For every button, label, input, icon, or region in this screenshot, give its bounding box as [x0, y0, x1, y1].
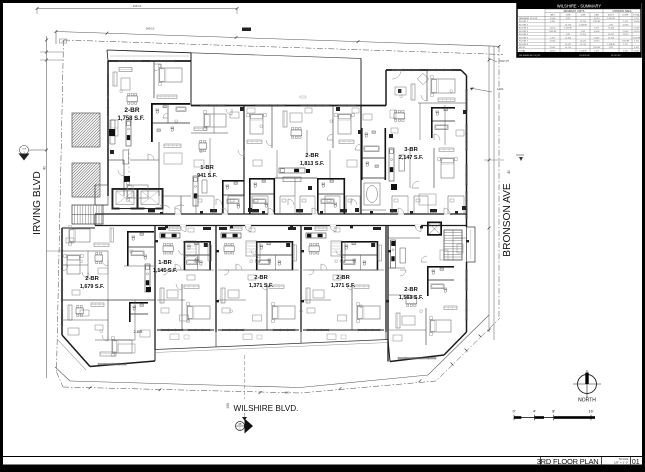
- svg-text:8': 8': [552, 410, 555, 414]
- svg-text:2-BR: 2-BR: [254, 275, 268, 281]
- svg-text:RESIDENT UNITS: RESIDENT UNITS: [564, 10, 585, 13]
- svg-text:2-BR: 2-BR: [566, 15, 571, 17]
- svg-text:1,371: 1,371: [581, 31, 586, 33]
- svg-text:4,325: 4,325: [550, 21, 555, 23]
- svg-text:CORR.: CORR.: [622, 15, 629, 17]
- svg-text:1,585 SF: 1,585 SF: [607, 18, 616, 20]
- svg-text:1,371: 1,371: [634, 18, 639, 20]
- svg-text:FLOOR 5: FLOOR 5: [519, 34, 529, 36]
- svg-text:941 S.F.: 941 S.F.: [197, 173, 217, 179]
- svg-text:3-BR: 3-BR: [404, 147, 418, 153]
- svg-text:1,585 SF: 1,585 SF: [593, 21, 602, 23]
- svg-text:1,371 S.F.: 1,371 S.F.: [331, 283, 356, 289]
- svg-text:1,371: 1,371: [594, 28, 599, 30]
- svg-text:123,456 SF: 123,456 SF: [579, 55, 590, 57]
- svg-text:12,456: 12,456: [550, 18, 556, 20]
- svg-text:1-BR: 1-BR: [200, 165, 214, 171]
- svg-text:12,456: 12,456: [634, 21, 640, 23]
- svg-text:13,716: 13,716: [594, 41, 600, 43]
- svg-text:21,047: 21,047: [565, 44, 571, 46]
- svg-text:1,371: 1,371: [623, 44, 628, 46]
- svg-text:NORTH: NORTH: [578, 398, 596, 404]
- svg-text:1,145 S.F.: 1,145 S.F.: [153, 268, 178, 274]
- svg-text:16': 16': [589, 410, 594, 414]
- svg-text:WILSHIRE - SUMMARY: WILSHIRE - SUMMARY: [557, 3, 602, 8]
- svg-text:1,371 S.F.: 1,371 S.F.: [249, 283, 274, 289]
- svg-text:12,456: 12,456: [565, 37, 571, 39]
- svg-text:21,047: 21,047: [634, 28, 640, 30]
- svg-text:HIGH PT: HIGH PT: [499, 60, 510, 63]
- svg-text:12,456: 12,456: [594, 31, 600, 33]
- svg-text:FLOOR 1: FLOOR 1: [519, 21, 529, 23]
- svg-text:4,325: 4,325: [566, 18, 571, 20]
- svg-text:4,325: 4,325: [634, 47, 639, 49]
- svg-text:1,371: 1,371: [609, 24, 614, 26]
- svg-text:1,371: 1,371: [594, 50, 599, 52]
- svg-text:7,148 SF: 7,148 SF: [579, 50, 588, 52]
- svg-text:40: 40: [43, 166, 47, 170]
- svg-text:1,585 SF: 1,585 SF: [564, 28, 573, 30]
- svg-text:FLOOR 6: FLOOR 6: [519, 37, 529, 39]
- svg-text:1,371: 1,371: [634, 41, 639, 43]
- svg-text:7,148 SF: 7,148 SF: [633, 37, 642, 39]
- svg-text:3RD FLOOR PLAN: 3RD FLOOR PLAN: [537, 457, 599, 466]
- svg-text:FLOOR 8: FLOOR 8: [519, 44, 529, 46]
- svg-text:12,456: 12,456: [608, 28, 614, 30]
- svg-text:SQ.FT.: SQ.FT.: [608, 15, 615, 17]
- svg-text:13,716: 13,716: [594, 18, 600, 20]
- svg-text:100: 100: [226, 403, 230, 409]
- svg-text:1,371: 1,371: [623, 21, 628, 23]
- svg-text:21,047: 21,047: [623, 31, 629, 33]
- svg-text:UNIT: UNIT: [550, 15, 556, 17]
- svg-text:13,716: 13,716: [565, 24, 571, 26]
- svg-text:2,147 S.F.: 2,147 S.F.: [399, 155, 424, 161]
- svg-text:1,585 SF: 1,585 SF: [549, 31, 558, 33]
- svg-text:13,716: 13,716: [634, 31, 640, 33]
- svg-text:1/8" = 1'-0": 1/8" = 1'-0": [614, 461, 629, 465]
- svg-text:BRONSON AVE: BRONSON AVE: [502, 183, 513, 257]
- svg-text:ROOF: ROOF: [519, 47, 526, 49]
- svg-text:1,371: 1,371: [566, 34, 571, 36]
- svg-text:13,716: 13,716: [550, 50, 556, 52]
- svg-text:1,563 S.F.: 1,563 S.F.: [399, 295, 424, 301]
- svg-text:12,456: 12,456: [623, 24, 629, 26]
- svg-text:1,679 S.F.: 1,679 S.F.: [80, 284, 105, 290]
- svg-text:21,047: 21,047: [580, 41, 586, 43]
- svg-text:TOTAL: TOTAL: [519, 49, 526, 52]
- svg-text:FLOOR 2: FLOOR 2: [519, 24, 529, 26]
- svg-text:13,716: 13,716: [608, 37, 614, 39]
- svg-text:1,758 S.F.: 1,758 S.F.: [117, 116, 144, 122]
- svg-text:1,585 SF: 1,585 SF: [579, 24, 588, 26]
- svg-text:1,371: 1,371: [609, 47, 614, 49]
- svg-text:2-BR: 2-BR: [85, 276, 99, 282]
- svg-text:12,456: 12,456: [580, 34, 586, 36]
- svg-text:1-BR: 1-BR: [581, 15, 586, 17]
- svg-text:3-BR: 3-BR: [594, 15, 599, 17]
- svg-text:1,813 S.F.: 1,813 S.F.: [300, 161, 325, 167]
- svg-text:13,716: 13,716: [580, 44, 586, 46]
- svg-text:7,148 SF: 7,148 SF: [622, 41, 631, 43]
- svg-text:2-BR: 2-BR: [305, 153, 319, 159]
- svg-text:FLOOR 3: FLOOR 3: [519, 28, 529, 30]
- svg-text:FLOOR 4: FLOOR 4: [519, 31, 529, 33]
- svg-text:13,716: 13,716: [550, 28, 556, 30]
- svg-text:TOTAL: TOTAL: [633, 14, 640, 17]
- svg-text:WILSHIRE BLVD.: WILSHIRE BLVD.: [234, 404, 299, 413]
- svg-text:FLOOR 7: FLOOR 7: [519, 41, 529, 43]
- svg-text:21,047: 21,047: [550, 47, 556, 49]
- svg-text:13,716: 13,716: [623, 34, 629, 36]
- svg-text:21,047: 21,047: [608, 34, 614, 36]
- svg-text:98,765 SF: 98,765 SF: [611, 55, 621, 57]
- svg-text:COP: COP: [22, 149, 27, 151]
- svg-text:13,716: 13,716: [580, 21, 586, 23]
- svg-text:IRVING BLVD: IRVING BLVD: [32, 171, 43, 235]
- svg-text:249.10: 249.10: [133, 4, 142, 8]
- svg-text:1-BR: 1-BR: [158, 260, 172, 266]
- svg-text:7,148 SF: 7,148 SF: [607, 44, 616, 46]
- svg-text:21,047: 21,047: [634, 50, 640, 52]
- svg-text:1,371: 1,371: [550, 37, 555, 39]
- svg-text:249.10: 249.10: [146, 27, 155, 31]
- svg-text:21,047: 21,047: [594, 37, 600, 39]
- svg-text:RESIDENT FLOOR: RESIDENT FLOOR: [519, 18, 538, 20]
- svg-text:13,716: 13,716: [565, 47, 571, 49]
- svg-text:01: 01: [632, 459, 640, 466]
- svg-text:4,325: 4,325: [623, 50, 628, 52]
- svg-text:7,148 SF: 7,148 SF: [593, 47, 602, 49]
- svg-text:40: 40: [507, 170, 511, 174]
- svg-text:4': 4': [533, 410, 536, 414]
- svg-text:COMMON AREA: COMMON AREA: [612, 10, 631, 13]
- svg-text:2-BR: 2-BR: [124, 107, 139, 114]
- svg-text:2-BR: 2-BR: [404, 287, 418, 293]
- svg-text:0': 0': [513, 410, 516, 414]
- svg-text:1,660: 1,660: [497, 88, 504, 91]
- svg-text:12,456: 12,456: [550, 41, 556, 43]
- svg-text:WILSHIRE NET SQ.FT.: WILSHIRE NET SQ.FT.: [519, 55, 541, 57]
- svg-text:330: 330: [285, 392, 290, 395]
